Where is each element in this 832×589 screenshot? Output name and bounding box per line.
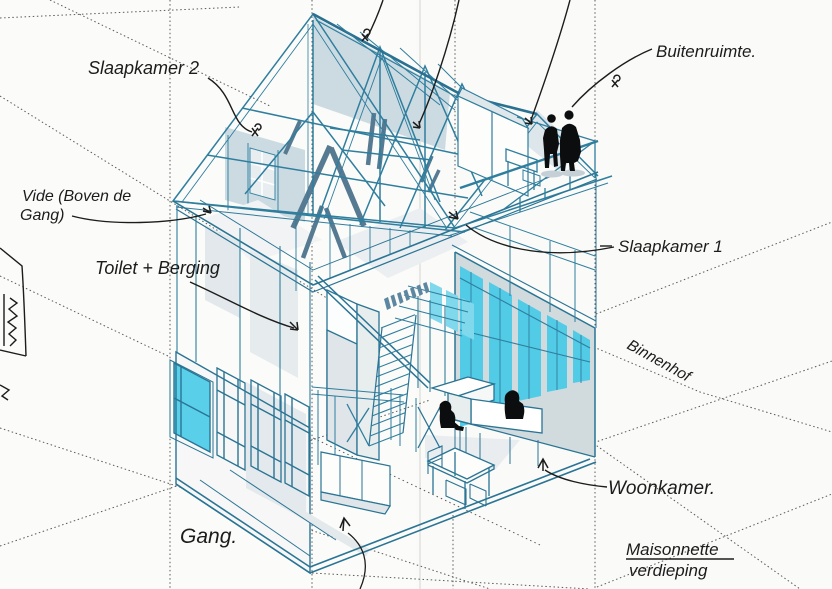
svg-text:Gang.: Gang. [180,525,237,548]
svg-text:Maisonnette: Maisonnette [626,540,719,559]
svg-text:Gang): Gang) [20,207,64,224]
svg-text:Toilet + Berging: Toilet + Berging [95,258,220,278]
svg-text:Slaapkamer 1: Slaapkamer 1 [618,237,723,256]
svg-text:Slaapkamer 2: Slaapkamer 2 [88,58,199,78]
svg-text:verdieping: verdieping [629,561,708,580]
svg-text:Vide (Boven de: Vide (Boven de [22,188,131,205]
svg-text:Buitenruimte.: Buitenruimte. [656,42,756,61]
svg-text:Woonkamer.: Woonkamer. [608,478,715,499]
